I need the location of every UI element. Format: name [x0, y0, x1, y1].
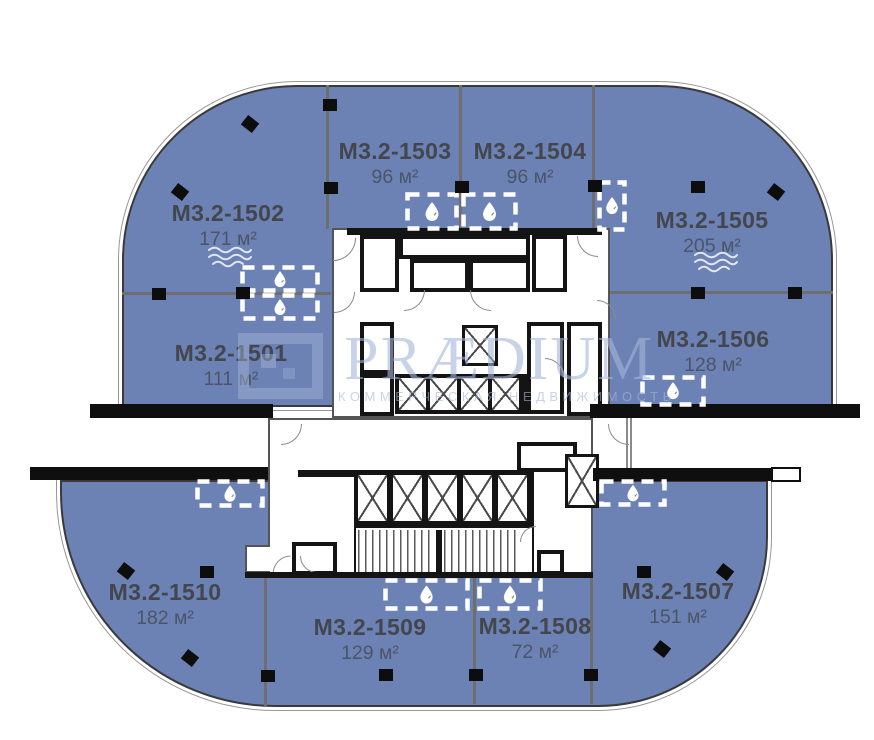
elevator-shaft-icon [358, 475, 387, 521]
core-room [469, 259, 530, 292]
unit-1507[interactable]: М3.2-1507 151 м² [622, 578, 735, 629]
wet-point-box [240, 265, 320, 293]
wet-point-box [240, 293, 320, 321]
column-marker [469, 669, 483, 681]
unit-code: М3.2-1502 [172, 200, 285, 227]
column-marker [584, 669, 598, 681]
water-drop-icon [627, 485, 638, 501]
divider-1510-1509 [264, 577, 267, 707]
slab-bar-right-top [590, 404, 860, 418]
wet-point-box [383, 578, 470, 611]
unit-1509[interactable]: М3.2-1509 129 м² [314, 614, 427, 665]
core-room [360, 374, 394, 416]
unit-code: М3.2-1510 [109, 579, 222, 606]
elevator-bank [354, 470, 534, 526]
elevator-shaft-icon [463, 475, 492, 521]
water-drop-icon [224, 485, 235, 501]
column-marker [323, 99, 337, 111]
elevator-bank [395, 374, 527, 414]
unit-code: М3.2-1506 [657, 326, 770, 353]
wet-point-box [461, 192, 518, 231]
core-wall [298, 470, 354, 477]
building-core-upper [332, 228, 610, 418]
wet-point-box [477, 578, 543, 611]
column-marker [200, 566, 214, 578]
unit-1502[interactable]: М3.2-1502 171 м² [172, 200, 285, 251]
unit-1501[interactable]: М3.2-1501 111 м² [175, 340, 288, 391]
unit-code: М3.2-1501 [175, 340, 288, 367]
core-room [567, 322, 602, 416]
unit-code: М3.2-1509 [314, 614, 427, 641]
column-marker [588, 180, 602, 192]
unit-1503[interactable]: М3.2-1503 96 м² [339, 138, 452, 189]
unit-code: М3.2-1504 [474, 138, 587, 165]
column-marker [152, 288, 166, 300]
core-room [360, 322, 394, 374]
unit-1508[interactable]: М3.2-1508 72 м² [479, 613, 592, 664]
door-arc-icon [608, 424, 629, 445]
unit-1510[interactable]: М3.2-1510 182 м² [109, 579, 222, 630]
unit-code: М3.2-1507 [622, 578, 735, 605]
elevator-shaft-icon [462, 325, 498, 366]
core-room [399, 235, 530, 259]
unit-area: 151 м² [622, 606, 735, 629]
elevator-shaft-icon [430, 378, 457, 410]
elevator-shaft-icon [399, 378, 426, 410]
column-marker [379, 669, 393, 681]
unit-area: 96 м² [474, 166, 587, 189]
column-marker [637, 566, 651, 578]
unit-area: 72 м² [479, 641, 592, 664]
unit-area: 128 м² [657, 354, 770, 377]
water-drop-icon [504, 586, 516, 604]
water-waves-icon [207, 246, 253, 268]
water-drop-icon [483, 202, 496, 221]
divider-1509-1508 [473, 577, 476, 704]
unit-area: 182 м² [109, 607, 222, 630]
slab-bar-end-box [771, 467, 801, 482]
water-drop-icon [667, 382, 679, 399]
floor-plan: М3.2-1502 171 м² М3.2-1503 96 м² М3.2-15… [0, 0, 874, 740]
unit-code: М3.2-1505 [656, 207, 769, 234]
elevator-shaft-icon [498, 475, 527, 521]
core-room [245, 545, 270, 573]
unit-code: М3.2-1508 [479, 613, 592, 640]
wet-point-box [640, 375, 706, 407]
wet-point-box [599, 479, 667, 507]
column-marker [691, 181, 705, 193]
elevator-shaft-icon [492, 378, 519, 410]
unit-1506[interactable]: М3.2-1506 128 м² [657, 326, 770, 377]
column-marker [788, 287, 802, 299]
column-marker [261, 670, 275, 682]
building-core-lower [268, 418, 593, 577]
water-waves-icon [693, 251, 739, 273]
column-marker [455, 181, 469, 193]
unit-area: 111 м² [175, 368, 288, 391]
divider-1504-1505 [592, 85, 595, 229]
water-drop-icon [426, 202, 439, 221]
core-room [360, 235, 399, 292]
core-room [532, 235, 567, 292]
unit-area: 96 м² [339, 166, 452, 189]
water-drop-icon [275, 299, 286, 315]
water-drop-icon [606, 197, 618, 214]
elevator-shaft-icon [565, 454, 599, 508]
stairs-icon [444, 530, 520, 573]
wet-point-box [195, 479, 265, 508]
wet-point-box [405, 192, 459, 231]
elevator-shaft-icon [428, 475, 457, 521]
elevator-shaft-icon [393, 475, 422, 521]
core-wall [436, 530, 442, 573]
column-marker [236, 287, 250, 299]
unit-area: 129 м² [314, 642, 427, 665]
column-marker [691, 287, 705, 299]
unit-1504[interactable]: М3.2-1504 96 м² [474, 138, 587, 189]
water-drop-icon [275, 271, 286, 287]
slab-bar-left-top [90, 404, 273, 418]
core-room [410, 259, 469, 292]
water-drop-icon [420, 586, 432, 604]
stairs-icon [358, 530, 434, 573]
elevator-shaft-icon [461, 378, 488, 410]
stairwell [354, 526, 534, 577]
column-marker [324, 182, 338, 194]
unit-code: М3.2-1503 [339, 138, 452, 165]
